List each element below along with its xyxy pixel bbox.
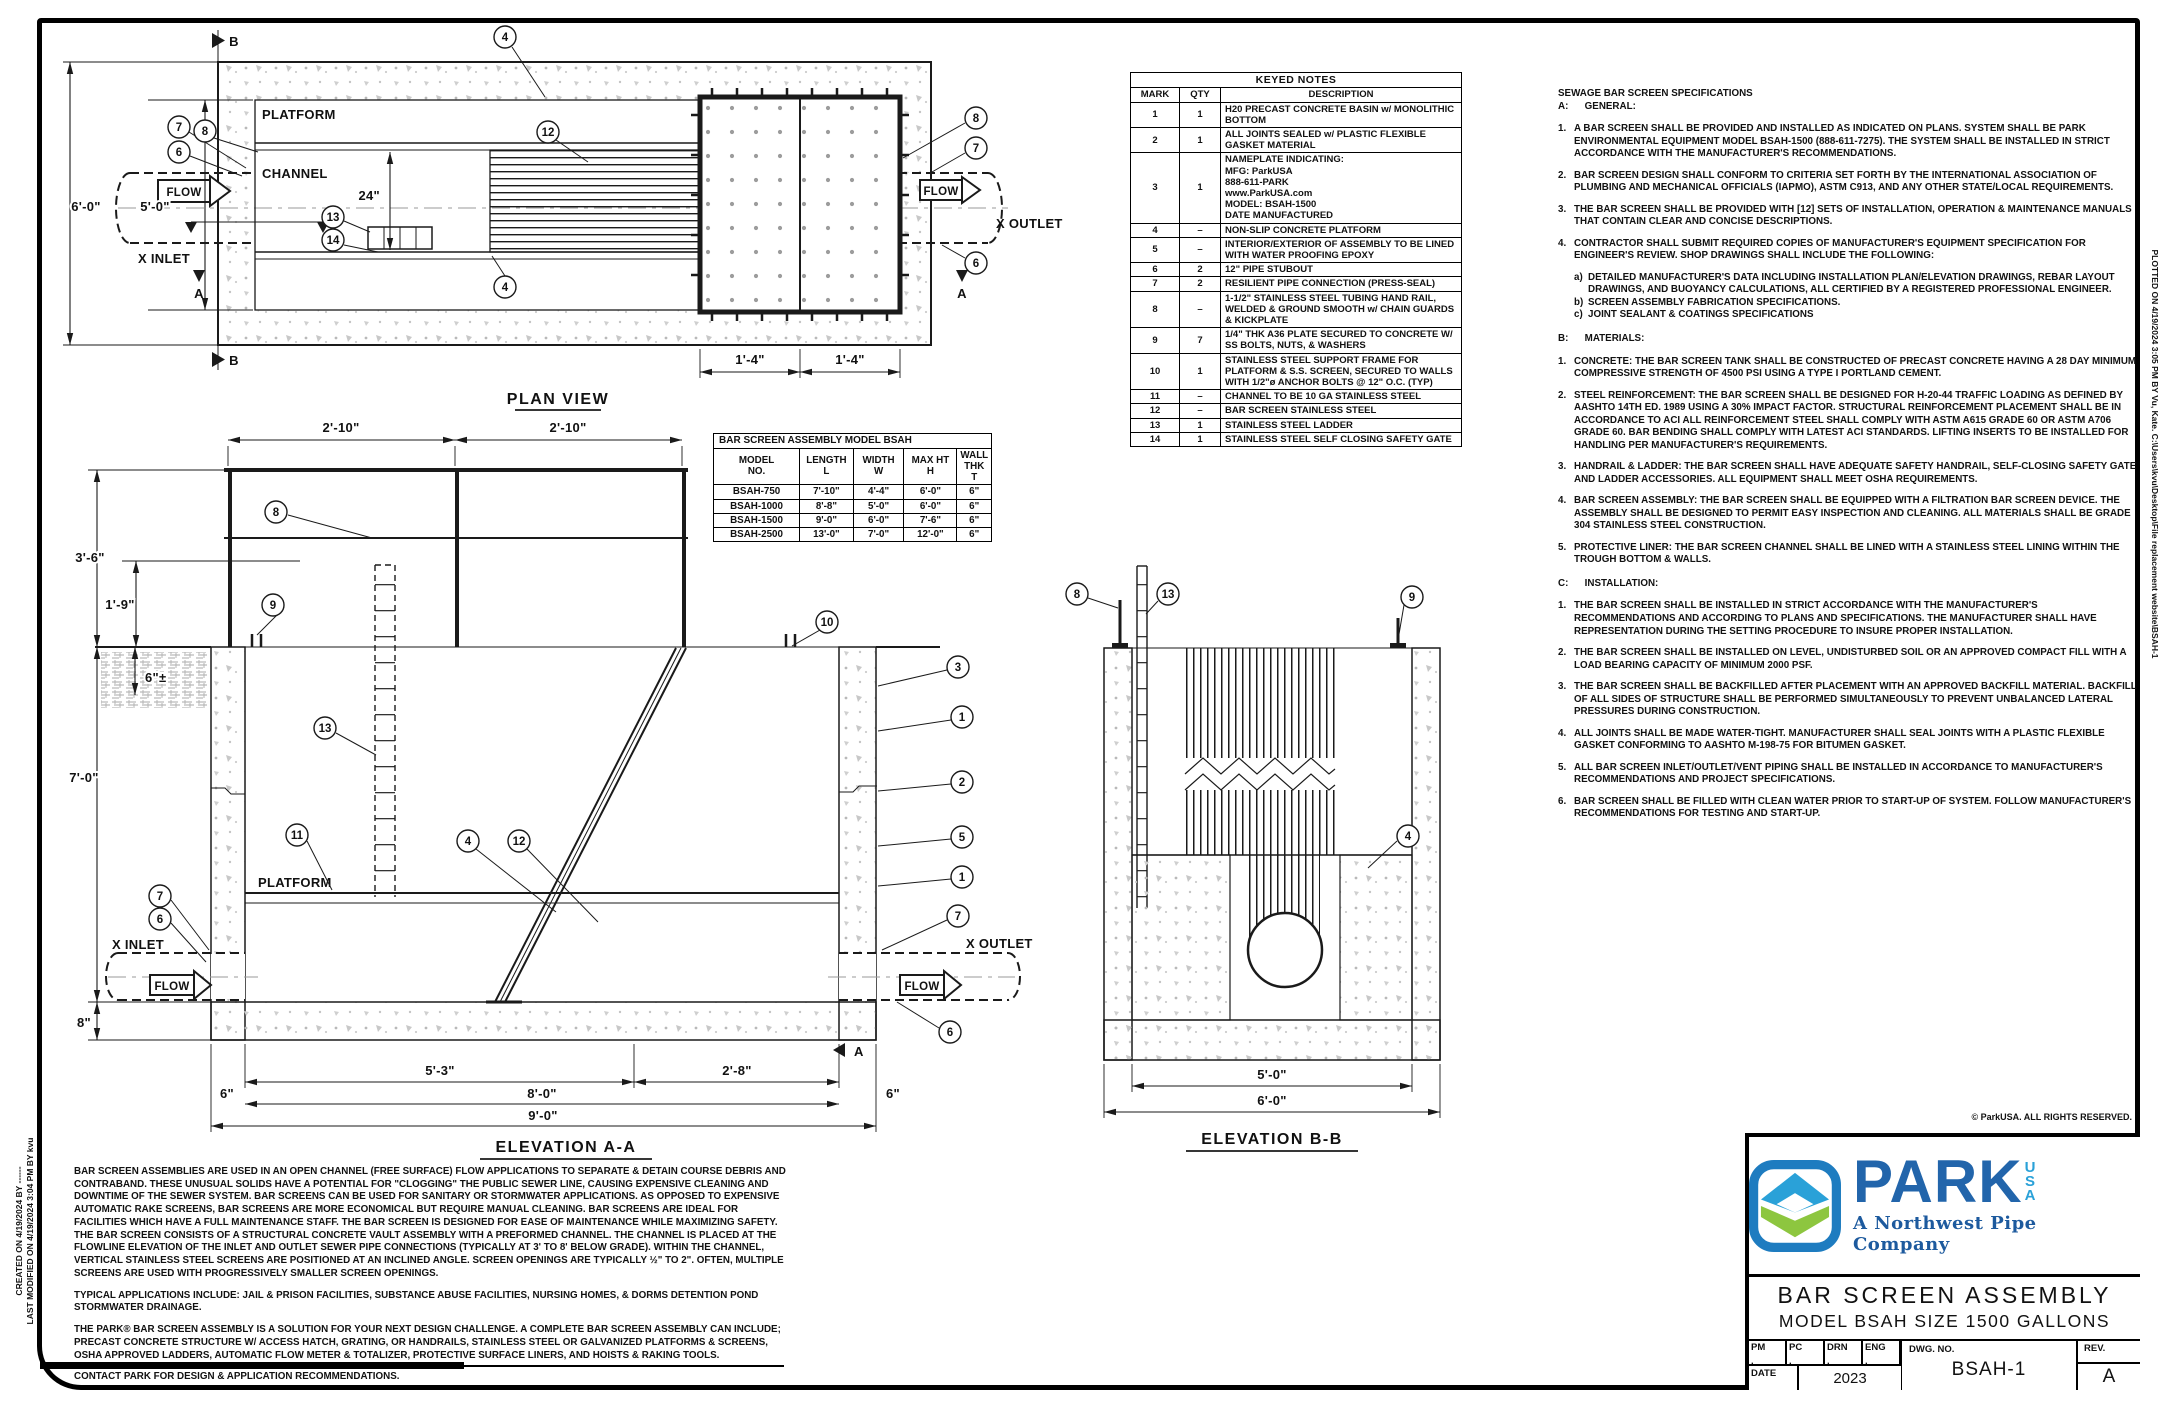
bb-pipe-opening [1248,913,1322,987]
svg-text:13: 13 [319,723,332,735]
keyed-note-row: 131STAINLESS STEEL LADDER [1131,418,1462,432]
title-block: PARK USA A Northwest Pipe Company BAR SC… [1745,1133,2140,1390]
specs-title: SEWAGE BAR SCREEN SPECIFICATIONS [1558,88,2138,101]
svg-text:A: A [957,286,967,301]
svg-text:4: 4 [465,836,472,848]
section-marker-a-elev: A [833,1043,864,1059]
spec-item: 4.BAR SCREEN ASSEMBLY: THE BAR SCREEN SH… [1558,495,2138,533]
specs-section-b: B: MATERIALS: [1558,333,2138,346]
svg-text:1'-9": 1'-9" [105,597,135,612]
svg-text:7: 7 [157,891,163,903]
section-marker-a-left: A [193,270,205,301]
keyed-note-row: 11–CHANNEL TO BE 10 GA STAINLESS STEEL [1131,390,1462,404]
svg-text:12: 12 [542,127,555,139]
flow-arrow-outlet-elev: FLOW [900,971,961,999]
svg-text:6: 6 [176,147,182,159]
field-eng: ENG. [1863,1341,1901,1366]
section-marker-b-bottom: B [212,345,239,370]
svg-text:4: 4 [502,32,509,44]
drawing-number: BSAH-1 [1902,1359,2076,1381]
svg-text:2'-10": 2'-10" [549,420,586,435]
specs-section-a: A: GENERAL: [1558,101,2138,114]
flow-arrow-inlet-elev: FLOW [150,971,211,999]
flow-arrow-outlet-plan: FLOW [920,177,980,203]
svg-text:6: 6 [947,1027,953,1039]
keyed-note-row: 141STAINLESS STEEL SELF CLOSING SAFETY G… [1131,432,1462,446]
svg-text:8: 8 [1074,589,1081,601]
keyed-note-row: 4–NON-SLIP CONCRETE PLATFORM [1131,223,1462,237]
model-row: BSAH-10008'-8"5'-0"6'-0"6" [714,499,992,513]
spec-item: 6.BAR SCREEN SHALL BE FILLED WITH CLEAN … [1558,796,2138,821]
plan-view-title: PLAN VIEW [507,391,609,408]
svg-text:12: 12 [513,836,526,848]
svg-text:5: 5 [959,832,966,844]
spec-item: 4.ALL JOINTS SHALL BE MADE WATER-TIGHT. … [1558,728,2138,753]
field-rev: REV. A [2078,1341,2140,1390]
field-drn: DRN. [1825,1341,1863,1366]
svg-text:6": 6" [886,1086,900,1101]
description-paragraph: THE PARK® BAR SCREEN ASSEMBLY IS A SOLUT… [74,1324,788,1362]
field-pm: PM. [1749,1341,1787,1366]
copyright-notice: © ParkUSA. ALL RIGHTS RESERVED. [1800,1112,2132,1122]
ladder-elev-a [375,565,395,897]
model-row: BSAH-7507'-10"4'-4"6'-0"6" [714,485,992,499]
section-marker-b-top: B [212,30,239,62]
svg-text:8: 8 [973,113,980,125]
spec-item: 1.THE BAR SCREEN SHALL BE INSTALLED IN S… [1558,600,2138,638]
specs-section-c: C: INSTALLATION: [1558,578,2138,591]
svg-text:5'-0": 5'-0" [1257,1067,1287,1082]
keyed-note-row: 6212" PIPE STUBOUT [1131,263,1462,277]
svg-text:5'-3": 5'-3" [425,1063,455,1078]
spec-item: 3.HANDRAIL & LADDER: THE BAR SCREEN SHAL… [1558,461,2138,486]
svg-text:14: 14 [327,235,340,247]
bb-platform-left [1132,855,1230,1020]
bar-screen-plan-hatch [490,150,700,252]
spec-item: 2.BAR SCREEN DESIGN SHALL CONFORM TO CRI… [1558,170,2138,195]
svg-text:6'-0": 6'-0" [1257,1093,1287,1108]
svg-text:10: 10 [821,617,834,629]
svg-text:8: 8 [273,507,280,519]
label-platform-plan: PLATFORM [262,107,336,122]
dim-6ft: 6'-0" [71,199,101,214]
label-x-outlet-plan: X OUTLET [996,216,1063,231]
model-table-title: BAR SCREEN ASSEMBLY MODEL BSAH [714,434,992,449]
drawing-title: BAR SCREEN ASSEMBLY [1749,1282,2140,1309]
bottom-slab [211,1002,876,1040]
svg-text:11: 11 [291,830,304,842]
description-block: BAR SCREEN ASSEMBLIES ARE USED IN AN OPE… [74,1166,788,1393]
section-marker-a-right: A [956,270,968,301]
plan-view: FLOW FLOW 6'-0" 5'-0" 24" 1'-4" 1'-4" [63,26,1063,410]
bb-bottom-slab [1104,1020,1440,1060]
description-paragraph: BAR SCREEN ASSEMBLIES ARE USED IN AN OPE… [74,1166,788,1281]
model-row: BSAH-250013'-0"7'-0"12'-0"6" [714,528,992,542]
svg-text:7: 7 [955,911,961,923]
svg-text:4: 4 [1405,831,1412,843]
label-x-outlet-elev: X OUTLET [966,936,1033,951]
keyed-note-row: 5–INTERIOR/EXTERIOR OF ASSEMBLY TO BE LI… [1131,237,1462,262]
drawing-sheet: FLOW FLOW 6'-0" 5'-0" 24" 1'-4" 1'-4" [0,0,2176,1408]
label-channel-plan: CHANNEL [262,166,328,181]
svg-text:8'-0": 8'-0" [527,1086,557,1101]
spec-item: 2.STEEL REINFORCEMENT: THE BAR SCREEN SH… [1558,390,2138,453]
svg-text:B: B [229,353,239,368]
svg-text:9: 9 [1409,592,1415,604]
svg-text:A: A [194,286,204,301]
elevation-b-b: 8 13 9 4 5'-0" 6'-0" ELEVATION B-B [1066,566,1440,1151]
keyed-note-row: 8–1-1/2" STAINLESS STEEL TUBING HAND RAI… [1131,291,1462,328]
svg-text:6": 6" [220,1086,234,1101]
spec-subitem: b)SCREEN ASSEMBLY FABRICATION SPECIFICAT… [1574,297,2138,310]
svg-text:7: 7 [973,143,979,155]
keyed-note-row: 21ALL JOINTS SEALED w/ PLASTIC FLEXIBLE … [1131,127,1462,152]
keyed-note-row: 12–BAR SCREEN STAINLESS STEEL [1131,404,1462,418]
svg-text:FLOW: FLOW [904,981,939,993]
svg-text:13: 13 [327,212,340,224]
svg-text:3: 3 [955,662,961,674]
svg-text:FLOW: FLOW [166,187,201,199]
keyed-notes-table: KEYED NOTES MARK QTY DESCRIPTION 11H20 P… [1130,72,1462,447]
spec-subitem: a)DETAILED MANUFACTURER'S DATA INCLUDING… [1574,272,2138,297]
keyed-note-row: 971/4" THK A36 PLATE SECURED TO CONCRETE… [1131,328,1462,353]
dim-5ft: 5'-0" [140,199,170,214]
dim-24in: 24" [358,188,380,203]
spec-item: 5.ALL BAR SCREEN INLET/OUTLET/VENT PIPIN… [1558,762,2138,787]
drawing-subtitle: MODEL BSAH SIZE 1500 GALLONS [1749,1311,2140,1332]
spec-item: 3.THE BAR SCREEN SHALL BE BACKFILLED AFT… [1558,681,2138,719]
keyed-note-row: 31NAMEPLATE INDICATING: MFG: ParkUSA 888… [1131,153,1462,223]
model-size-table: BAR SCREEN ASSEMBLY MODEL BSAH MODEL NO.… [713,433,992,542]
label-platform-elev: PLATFORM [258,875,332,890]
keyed-notes-title: KEYED NOTES [1131,73,1462,88]
keyed-note-row: 11H20 PRECAST CONCRETE BASIN w/ MONOLITH… [1131,102,1462,127]
svg-text:7: 7 [176,122,182,134]
footer-line [464,1365,784,1367]
elevation-a-title: ELEVATION A-A [496,1139,637,1156]
svg-text:A: A [854,1044,864,1059]
svg-text:B: B [229,34,239,49]
keyed-note-row: 101STAINLESS STEEL SUPPORT FRAME FOR PLA… [1131,353,1462,390]
svg-text:7'-0": 7'-0" [69,770,99,785]
svg-text:1: 1 [959,712,966,724]
field-date-value: 2023 [1799,1366,1901,1390]
svg-text:4: 4 [502,282,509,294]
svg-text:2'-8": 2'-8" [722,1063,752,1078]
svg-text:3'-6": 3'-6" [75,550,105,565]
svg-text:9: 9 [270,600,276,612]
svg-text:6: 6 [157,914,163,926]
svg-text:FLOW: FLOW [154,981,189,993]
brand-usa: USA [2023,1159,2038,1209]
bb-platform-right [1340,855,1412,1020]
footer-bar [40,1362,464,1369]
svg-text:1: 1 [959,872,966,884]
parkusa-logo-icon [1749,1160,1841,1252]
description-paragraph: TYPICAL APPLICATIONS INCLUDE: JAIL & PRI… [74,1290,788,1315]
svg-text:9'-0": 9'-0" [528,1108,558,1123]
svg-text:8: 8 [202,126,209,138]
field-date-label: DATE [1749,1366,1799,1390]
label-x-inlet-plan: X INLET [138,251,190,266]
svg-text:FLOW: FLOW [923,186,958,198]
svg-text:1'-4": 1'-4" [735,352,765,367]
specifications-panel: SEWAGE BAR SCREEN SPECIFICATIONS A: GENE… [1558,88,2138,830]
created-stamp: CREATED ON 4/19/2024 BY ------ LAST MODI… [14,1101,40,1361]
label-x-inlet-elev: X INLET [112,937,164,952]
svg-text:6: 6 [973,258,979,270]
svg-text:2'-10": 2'-10" [322,420,359,435]
spec-item: 5.PROTECTIVE LINER: THE BAR SCREEN CHANN… [1558,542,2138,567]
svg-text:8": 8" [77,1015,91,1030]
field-pc: PC. [1787,1341,1825,1366]
svg-text:6"±: 6"± [145,670,166,685]
field-dwg: DWG. NO. BSAH-1 [1901,1341,2078,1390]
section-marker-a-line [185,222,329,233]
spec-item: 3.THE BAR SCREEN SHALL BE PROVIDED WITH … [1558,204,2138,229]
company-logo: PARK USA A Northwest Pipe Company [1749,1137,2140,1274]
spec-item: 1.A BAR SCREEN SHALL BE PROVIDED AND INS… [1558,123,2138,161]
revision-value: A [2078,1364,2140,1390]
elevation-b-title: ELEVATION B-B [1201,1131,1343,1148]
model-row: BSAH-15009'-0"6'-0"7'-6"6" [714,513,992,527]
description-contact: CONTACT PARK FOR DESIGN & APPLICATION RE… [74,1371,788,1384]
keyed-note-row: 72RESILIENT PIPE CONNECTION (PRESS-SEAL) [1131,277,1462,291]
ladder-plan [368,227,432,249]
bb-right-wall [1412,648,1440,1060]
handrail [224,470,688,647]
spec-item: 2.THE BAR SCREEN SHALL BE INSTALLED ON L… [1558,647,2138,672]
svg-text:1'-4": 1'-4" [835,352,865,367]
svg-text:13: 13 [1162,589,1175,601]
spec-subitem: c)JOINT SEALANT & COATINGS SPECIFICATION… [1574,309,2138,322]
plotted-stamp: PLOTTED ON 4/19/2024 3:05 PM BY Vu, Kate… [2148,54,2160,854]
svg-text:2: 2 [959,777,965,789]
brand-wordmark: PARK [1853,1157,2023,1206]
brand-tagline: A Northwest Pipe Company [1853,1213,2140,1255]
spec-item: 4.CONTRACTOR SHALL SUBMIT REQUIRED COPIE… [1558,238,2138,263]
spec-item: 1.CONCRETE: THE BAR SCREEN TANK SHALL BE… [1558,356,2138,381]
bb-left-wall [1104,648,1132,1060]
inclined-bar-screen [486,648,686,1002]
